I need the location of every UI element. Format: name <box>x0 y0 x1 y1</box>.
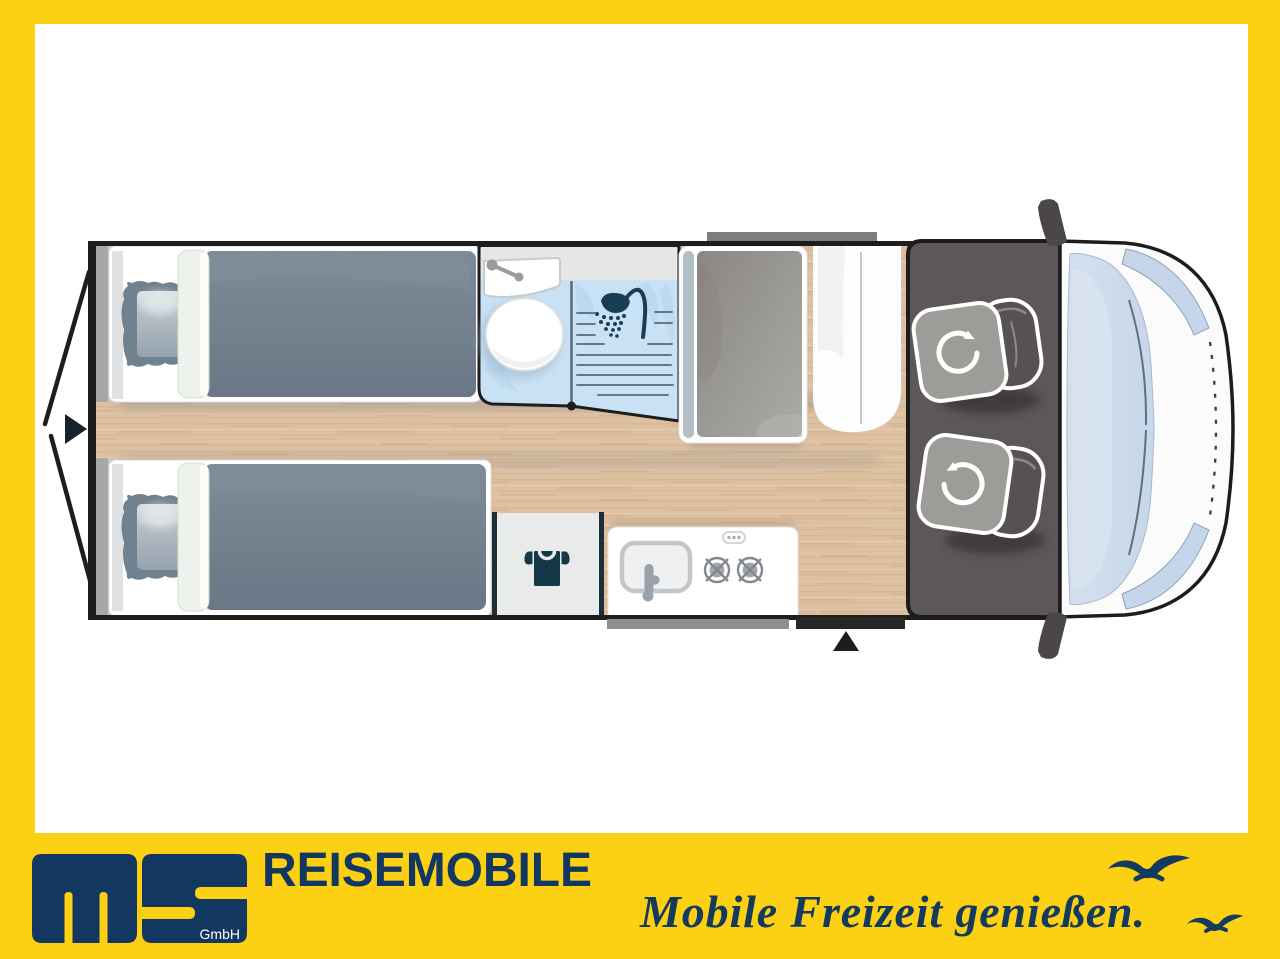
svg-text:GmbH: GmbH <box>200 926 240 942</box>
svg-text:Mobile Freizeit genießen.: Mobile Freizeit genießen. <box>639 886 1145 937</box>
svg-text:REISEMOBILE: REISEMOBILE <box>262 844 592 897</box>
